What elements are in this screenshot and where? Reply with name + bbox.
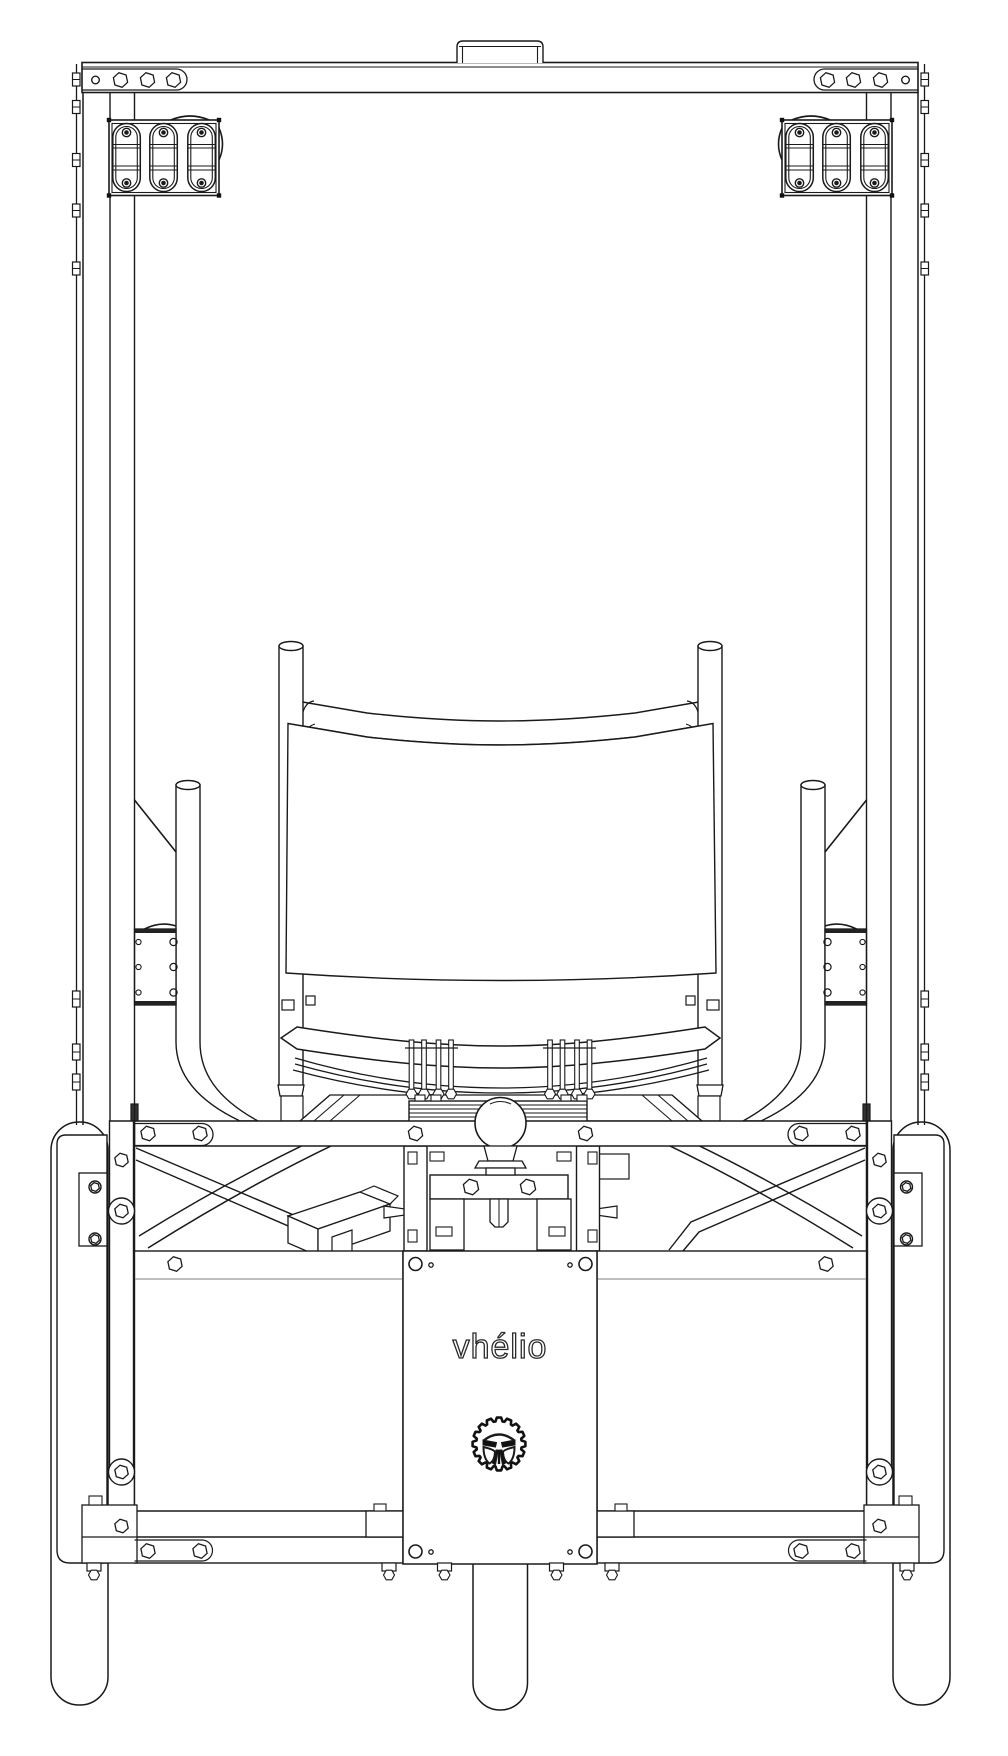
svg-text:vhélio: vhélio xyxy=(453,1328,548,1366)
